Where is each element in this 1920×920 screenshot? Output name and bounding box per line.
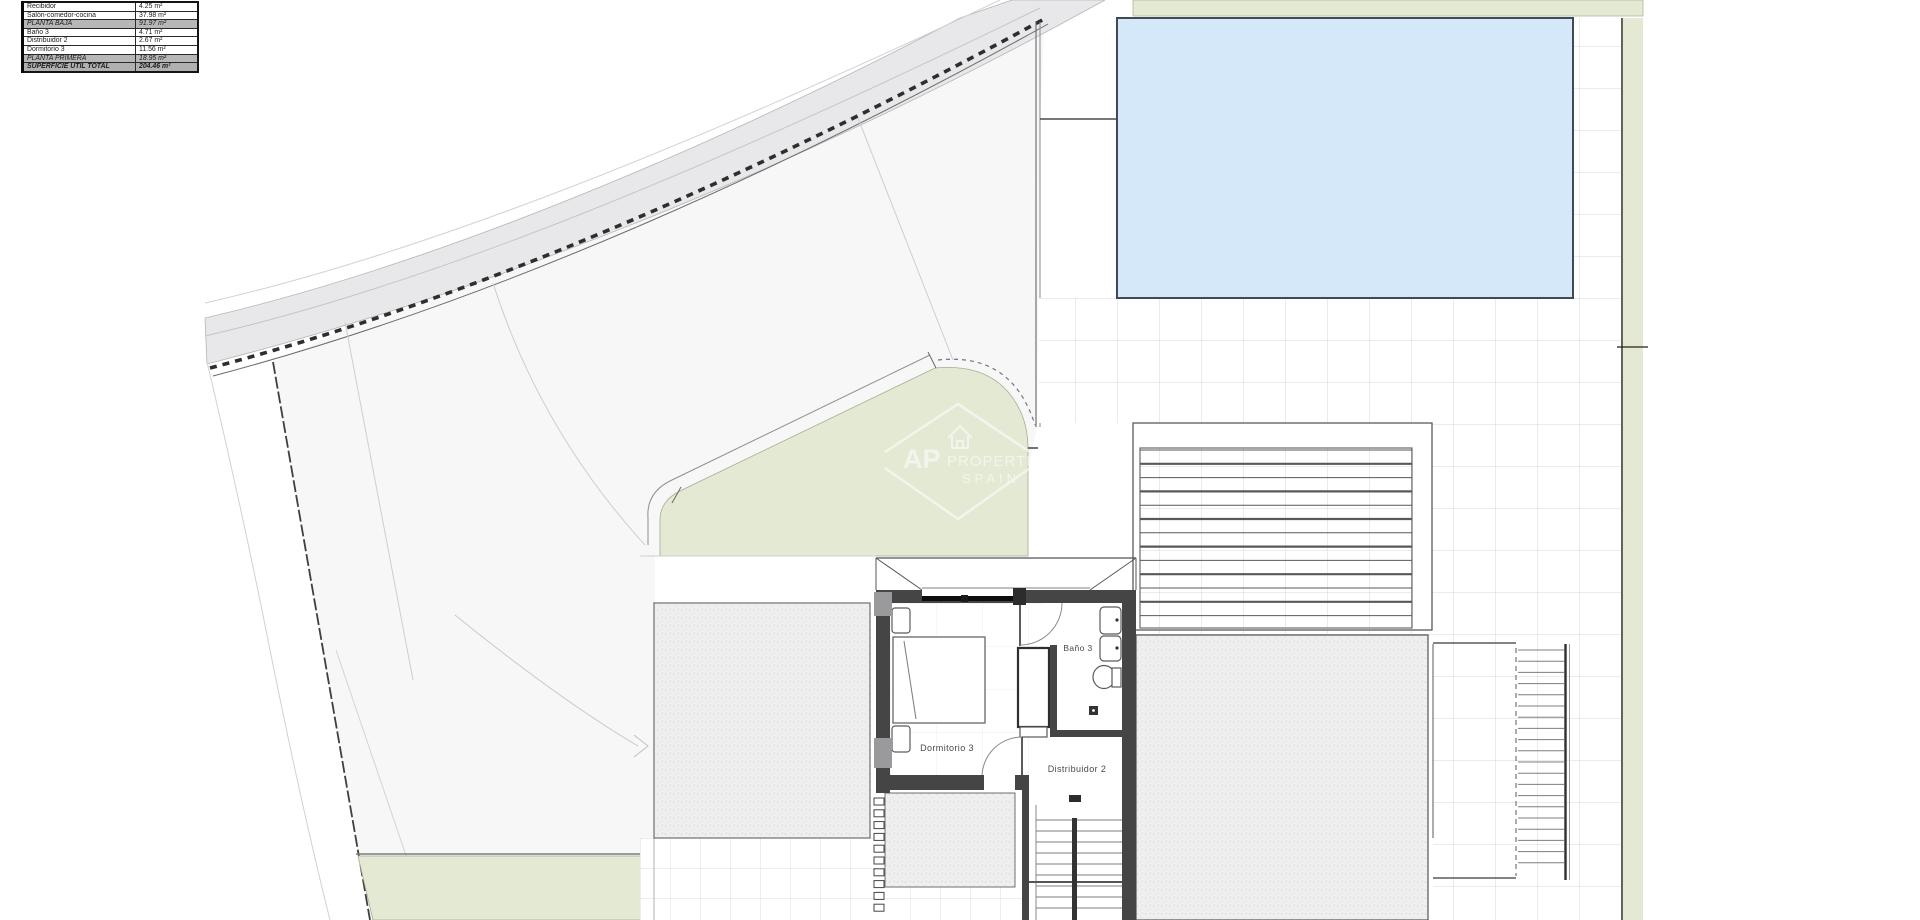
label-hall: Distribuidor 2 bbox=[1048, 764, 1107, 774]
area-legend-table: Recibidor4.25 m² Salón-comedor-cocina37.… bbox=[21, 1, 199, 73]
watermark-ap: AP bbox=[903, 444, 941, 474]
wardrobe bbox=[1018, 648, 1049, 727]
legend-row-planta-primera: PLANTA PRIMERA18.95 m² bbox=[23, 54, 199, 63]
pergola bbox=[1133, 423, 1432, 630]
legend-row-planta-baja: PLANTA BAJA91.97 m² bbox=[23, 20, 199, 29]
wardrobe-shelf bbox=[1020, 727, 1047, 737]
legend-row: Distribuidor 22.67 m² bbox=[23, 37, 199, 46]
porch-roof-edge bbox=[876, 558, 1136, 590]
watermark-properties: PROPERTIES bbox=[947, 453, 1053, 470]
watermark-spain: SPAIN bbox=[962, 471, 1020, 486]
legend-row: Recibidor4.25 m² bbox=[23, 2, 199, 11]
site-plan-drawing: Dormitorio 3 Baño 3 Distribuidor 2 AP PR… bbox=[0, 0, 1920, 920]
nightstand bbox=[892, 726, 910, 752]
legend-row: Dormitorio 311.56 m² bbox=[23, 45, 199, 54]
toilet-cistern bbox=[1112, 668, 1121, 687]
floor-plan-page: Dormitorio 3 Baño 3 Distribuidor 2 AP PR… bbox=[0, 0, 1920, 920]
grass-strip-right bbox=[1617, 18, 1648, 920]
legend-row-total: SUPERFICIE ÚTIL TOTAL204.46 m² bbox=[23, 63, 199, 72]
label-bathroom: Baño 3 bbox=[1063, 643, 1092, 653]
bed bbox=[893, 637, 985, 723]
legend-row: Baño 34.71 m² bbox=[23, 28, 199, 37]
legend-row: Salón-comedor-cocina37.98 m² bbox=[23, 11, 199, 20]
lawn-bottom-left bbox=[356, 854, 657, 920]
gravel-terrace-right bbox=[1136, 635, 1428, 920]
grass-strip-top bbox=[1133, 0, 1643, 16]
label-bedroom: Dormitorio 3 bbox=[920, 743, 974, 753]
nightstand bbox=[892, 608, 910, 633]
swimming-pool bbox=[1117, 18, 1573, 298]
